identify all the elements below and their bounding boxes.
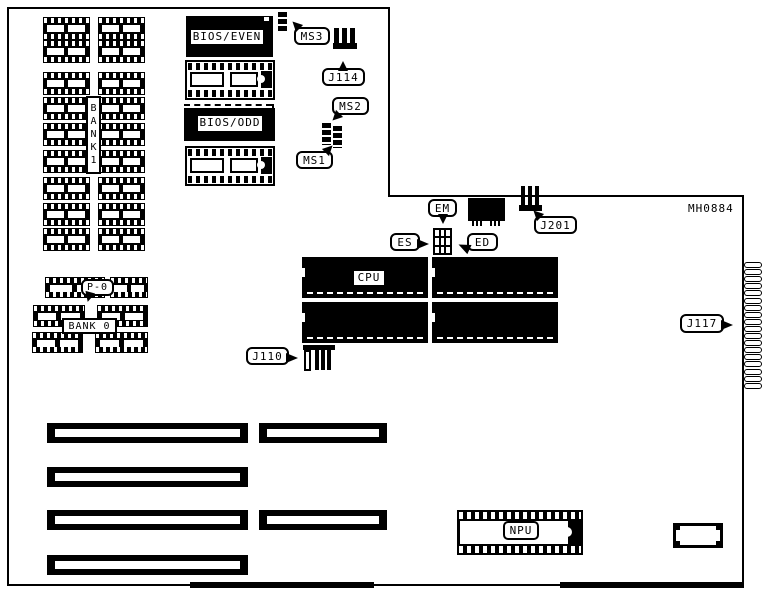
socket-detail: [99, 140, 144, 145]
socket-detail: [44, 194, 89, 199]
callout-j114-text: J114: [328, 71, 359, 84]
edge-connector-finger: [744, 376, 762, 382]
callout-es-text: ES: [397, 236, 412, 249]
callout-tail: [438, 214, 448, 224]
socket-detail: [99, 34, 144, 39]
j114-base: [333, 43, 357, 49]
memory-socket: [98, 72, 145, 95]
socket-detail: [47, 80, 64, 87]
memory-socket: [98, 97, 145, 120]
crystal-component: [673, 523, 723, 548]
edge-connector-finger: [744, 369, 762, 375]
socket-detail: [99, 57, 144, 62]
connector-tab: [490, 221, 501, 226]
edge-connector-finger: [744, 283, 762, 289]
socket-detail: [44, 229, 89, 234]
expansion-slot-short-2: [259, 510, 387, 530]
keyboard-connector: [468, 198, 505, 221]
edge-connector-finger: [744, 276, 762, 282]
j114-pin: [342, 28, 347, 44]
callout-j117: J117: [680, 314, 724, 333]
memory-socket: [95, 332, 148, 353]
expansion-slot-long-3: [47, 510, 248, 530]
socket-detail: [131, 285, 145, 292]
socket-detail: [44, 57, 89, 62]
socket-detail: [34, 306, 84, 311]
socket-detail: [44, 18, 89, 23]
socket-detail: [123, 105, 140, 112]
socket-window: [230, 72, 258, 87]
socket-detail: [47, 131, 64, 138]
bank0-label-text: BANK 0: [68, 321, 110, 332]
callout-em-text: EM: [435, 202, 450, 215]
bios-even-chip: BIOS/EVEN: [186, 16, 273, 57]
socket-notch: [257, 161, 265, 169]
socket-detail: [44, 114, 89, 119]
callout-tail: [338, 61, 348, 71]
corner-mark: [716, 541, 720, 545]
socket-detail: [102, 185, 119, 192]
socket-detail: [102, 105, 119, 112]
callout-ms1-text: MS1: [303, 154, 326, 167]
memory-socket: [43, 97, 90, 120]
socket-detail: [98, 306, 147, 311]
socket-detail: [44, 178, 89, 183]
socket-detail: [99, 89, 144, 94]
socket-pins: [188, 90, 272, 97]
socket-detail: [123, 131, 140, 138]
bios-odd-socket: [185, 146, 275, 186]
socket-detail: [99, 98, 144, 103]
board-edge-right: [742, 195, 744, 586]
callout-tail: [83, 291, 95, 303]
socket-detail: [99, 124, 144, 129]
socket-detail: [99, 194, 144, 199]
socket-detail: [47, 236, 64, 243]
socket-detail: [102, 48, 119, 55]
socket-detail: [111, 278, 147, 283]
socket-detail: [44, 167, 89, 172]
socket-pins: [459, 546, 581, 553]
cpu-block-3: [302, 302, 428, 343]
bios-odd-dashed-edge: [184, 104, 272, 106]
edge-connector-finger: [744, 333, 762, 339]
socket-detail: [68, 105, 85, 112]
socket-detail: [99, 204, 144, 209]
cpu-block-4: [432, 302, 558, 343]
socket-window: [230, 158, 258, 173]
callout-ms1: MS1: [296, 151, 333, 169]
bank1-label-text: BANK1: [88, 103, 99, 168]
edge-connector-finger: [744, 383, 762, 389]
memory-socket: [32, 332, 83, 353]
callout-j117-text: J117: [687, 317, 718, 330]
socket-detail: [68, 25, 85, 32]
socket-detail: [123, 185, 140, 192]
socket-pins: [459, 512, 581, 519]
edge-connector-finger: [744, 298, 762, 304]
j114-pin: [334, 28, 339, 44]
callout-j201: J201: [534, 216, 577, 234]
socket-detail: [96, 347, 147, 352]
bank0-label: BANK 0: [62, 318, 117, 334]
socket-window: [190, 72, 224, 87]
memory-socket: [43, 228, 90, 251]
socket-pins: [188, 63, 272, 70]
socket-detail: [47, 105, 64, 112]
socket-detail: [47, 211, 64, 218]
socket-detail: [123, 211, 140, 218]
bios-odd-chip: BIOS/ODD: [184, 108, 275, 141]
edge-connector-finger: [744, 312, 762, 318]
edge-connector-finger: [744, 347, 762, 353]
edge-connector-finger: [744, 319, 762, 325]
edge-connector-finger: [744, 340, 762, 346]
ms3-jumper: [278, 12, 287, 33]
socket-detail: [99, 167, 144, 172]
socket-detail: [123, 236, 140, 243]
socket-detail: [44, 140, 89, 145]
callout-ms2-text: MS2: [339, 100, 362, 113]
memory-socket: [98, 123, 145, 146]
socket-detail: [68, 236, 85, 243]
socket-detail: [99, 151, 144, 156]
socket-detail: [113, 285, 127, 292]
expansion-slot-short-1: [259, 423, 387, 443]
bottom-contact-strip-2: [560, 582, 744, 588]
socket-detail: [44, 245, 89, 250]
socket-pins: [188, 176, 272, 183]
j110-pin: [327, 350, 331, 370]
callout-j114: J114: [322, 68, 365, 86]
callout-tail: [456, 240, 471, 254]
socket-detail: [124, 340, 143, 347]
socket-detail: [102, 131, 119, 138]
memory-socket: [98, 17, 145, 40]
edge-connector-finger: [744, 262, 762, 268]
memory-socket: [43, 72, 90, 95]
memory-socket: [110, 277, 148, 298]
socket-detail: [123, 25, 140, 32]
callout-j110-text: J110: [252, 350, 283, 363]
corner-mark: [716, 526, 720, 530]
expansion-slot-long-4: [47, 555, 248, 575]
callout-ms3-text: MS3: [301, 30, 324, 43]
socket-detail: [123, 48, 140, 55]
memory-socket: [43, 17, 90, 40]
socket-detail: [99, 229, 144, 234]
callout-ed: ED: [467, 233, 498, 251]
socket-detail: [38, 313, 57, 320]
socket-detail: [123, 158, 140, 165]
socket-detail: [102, 80, 119, 87]
edge-connector-finger: [744, 361, 762, 367]
socket-detail: [123, 80, 140, 87]
j110-pin: [315, 350, 319, 370]
socket-detail: [44, 41, 89, 46]
board-edge-upper-right: [388, 7, 390, 197]
expansion-slot-long-2: [47, 467, 248, 487]
socket-detail: [44, 124, 89, 129]
socket-detail: [68, 158, 85, 165]
callout-ed-text: ED: [475, 236, 490, 249]
socket-detail: [68, 131, 85, 138]
memory-socket: [43, 123, 90, 146]
callout-tail: [721, 320, 733, 330]
socket-detail: [44, 89, 89, 94]
socket-detail: [99, 245, 144, 250]
connector-tab: [472, 221, 483, 226]
socket-detail: [44, 98, 89, 103]
socket-detail: [47, 185, 64, 192]
socket-detail: [68, 185, 85, 192]
edge-connector-finger: [744, 354, 762, 360]
cpu-label: CPU: [353, 270, 385, 286]
socket-detail: [102, 211, 119, 218]
socket-detail: [68, 211, 85, 218]
npu-label: NPU: [503, 521, 539, 540]
corner-mark: [676, 541, 680, 545]
socket-detail: [100, 340, 119, 347]
socket-detail: [99, 41, 144, 46]
memory-socket: [43, 40, 90, 63]
bios-even-socket: [185, 60, 275, 100]
callout-tail: [417, 239, 429, 249]
board-edge-top: [7, 7, 390, 9]
socket-detail: [47, 25, 64, 32]
bios-even-label: BIOS/EVEN: [190, 29, 264, 45]
board-id-text: MH0884: [688, 202, 734, 215]
memory-socket: [98, 177, 145, 200]
socket-detail: [60, 340, 78, 347]
memory-socket: [98, 150, 145, 173]
socket-detail: [99, 73, 144, 78]
edge-connector-finger: [744, 305, 762, 311]
callout-ms2: MS2: [332, 97, 369, 115]
socket-window: [190, 158, 224, 173]
corner-mark: [676, 526, 680, 530]
edge-connector-finger: [744, 326, 762, 332]
socket-detail: [44, 204, 89, 209]
edge-connector-finger: [744, 269, 762, 275]
board-edge-left: [7, 7, 9, 586]
socket-detail: [68, 48, 85, 55]
j114-pin: [350, 28, 355, 44]
npu-socket: NPU: [457, 510, 583, 555]
socket-detail: [44, 151, 89, 156]
memory-socket: [43, 177, 90, 200]
socket-detail: [102, 158, 119, 165]
motherboard-diagram: BANK1 BIOS/EVEN BIOS/ODD: [0, 0, 769, 594]
callout-es: ES: [390, 233, 420, 251]
socket-detail: [44, 220, 89, 225]
socket-detail: [47, 158, 64, 165]
socket-detail: [47, 48, 64, 55]
bank1-label: BANK1: [86, 96, 101, 174]
callout-p0: P-0: [81, 279, 114, 296]
j201-pin: [528, 186, 532, 206]
cpu-block-2: [432, 257, 558, 298]
ms1-jumper: [333, 126, 342, 148]
socket-detail: [99, 220, 144, 225]
callout-j201-text: J201: [540, 219, 571, 232]
memory-socket: [43, 150, 90, 173]
memory-socket: [98, 228, 145, 251]
socket-detail: [44, 73, 89, 78]
socket-detail: [68, 80, 85, 87]
memory-socket: [98, 40, 145, 63]
j110-pin-outline: [304, 350, 311, 371]
socket-detail: [99, 178, 144, 183]
socket-detail: [102, 236, 119, 243]
socket-notch: [257, 75, 265, 83]
expansion-slot-long-1: [47, 423, 248, 443]
socket-detail: [99, 18, 144, 23]
socket-detail: [33, 347, 82, 352]
j201-pin: [521, 186, 525, 206]
edge-connector-finger: [744, 290, 762, 296]
callout-j110: J110: [246, 347, 289, 365]
socket-detail: [102, 25, 119, 32]
em-es-ed-jumper-block: [433, 228, 452, 255]
socket-detail: [125, 313, 143, 320]
bottom-contact-strip-1: [190, 582, 374, 588]
socket-detail: [44, 34, 89, 39]
socket-detail: [111, 292, 147, 297]
socket-detail: [37, 340, 55, 347]
j201-pin: [535, 186, 539, 206]
socket-detail: [99, 114, 144, 119]
callout-em: EM: [428, 199, 457, 217]
socket-notch: [562, 527, 572, 537]
callout-tail: [286, 353, 298, 363]
bios-odd-label: BIOS/ODD: [197, 115, 263, 132]
board-edge-step: [388, 195, 744, 197]
socket-detail: [50, 285, 72, 292]
memory-socket: [43, 203, 90, 226]
callout-ms3: MS3: [294, 27, 330, 45]
bios-even-notch: [264, 17, 269, 21]
socket-pins: [188, 149, 272, 156]
memory-socket: [98, 203, 145, 226]
j110-pin: [321, 350, 325, 370]
